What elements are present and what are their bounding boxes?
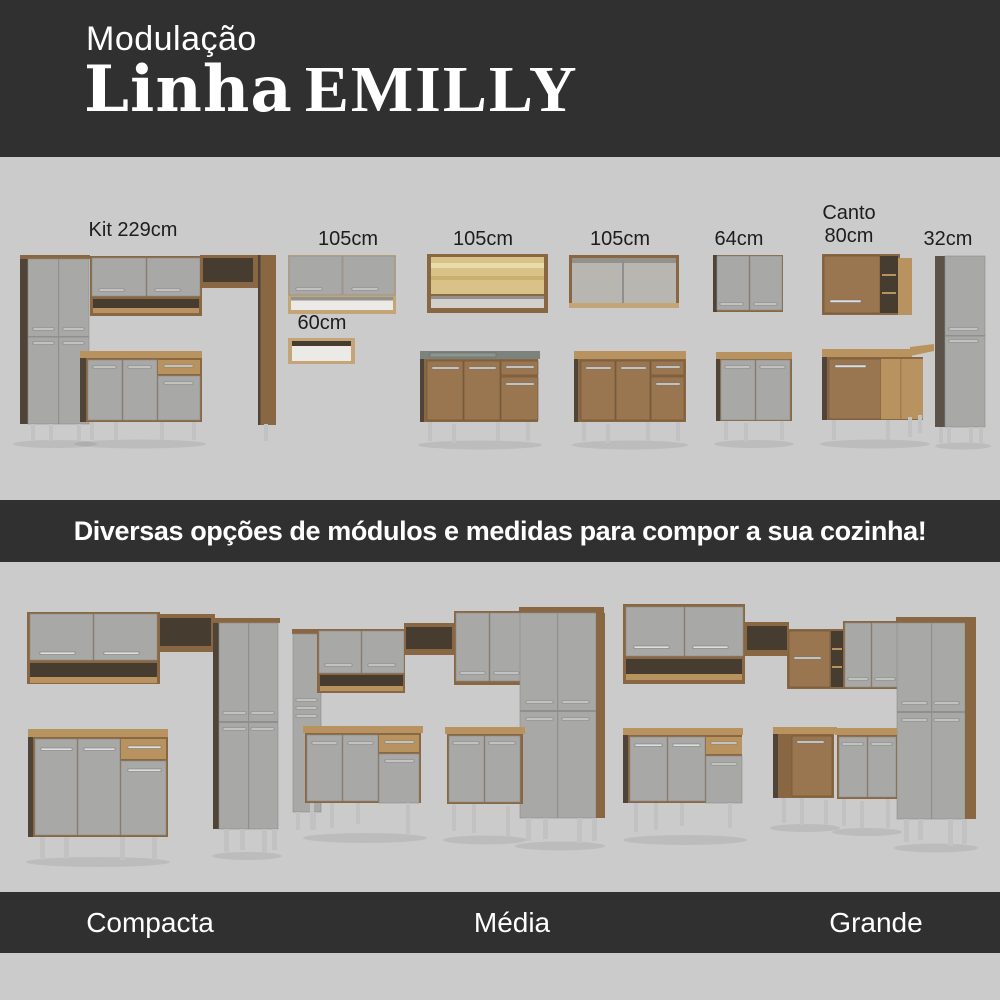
module-base-105-sink-illustration [418, 351, 542, 450]
module-wall-64-illustration [713, 255, 783, 312]
label-105-b: 105cm [453, 228, 513, 251]
page-title: LinhaEMILLY [84, 52, 579, 128]
footer-band: Compacta Média Grande [0, 892, 1000, 953]
label-105-a: 105cm [318, 228, 378, 251]
module-wall-canto-80-illustration [822, 254, 912, 315]
module-wall-105-a-illustration [288, 255, 396, 314]
module-wall-105-c-illustration [569, 255, 679, 308]
label-canto-80: Canto 80cm [822, 202, 875, 248]
label-media: Média [474, 892, 550, 953]
kitchen-compacta-illustration [26, 612, 282, 867]
title-collection-name: EMILLY [305, 53, 579, 126]
label-64: 64cm [715, 228, 764, 251]
module-base-105-illustration [572, 351, 688, 450]
label-105-c: 105cm [590, 228, 650, 251]
label-32: 32cm [924, 228, 973, 251]
label-canto-line1: Canto [822, 202, 875, 225]
module-tall-32-illustration [935, 256, 991, 450]
label-kit-229: Kit 229cm [89, 219, 178, 242]
module-base-64-illustration [714, 352, 794, 448]
header-band: Modulação LinhaEMILLY [0, 0, 1000, 157]
kitchen-grande-illustration [623, 604, 978, 853]
module-niche-60-illustration [288, 338, 355, 364]
module-kit-229-illustration [13, 255, 276, 449]
tagline-band: Diversas opções de módulos e medidas par… [0, 500, 1000, 562]
tagline-text: Diversas opções de módulos e medidas par… [74, 516, 927, 547]
poster: Modulação LinhaEMILLY Kit 229cm 105cm 10… [0, 0, 1000, 1000]
module-wall-105-b-illustration [427, 254, 548, 313]
kitchen-media-illustration [292, 607, 605, 851]
label-grande: Grande [829, 892, 922, 953]
label-60: 60cm [298, 312, 347, 335]
label-compacta: Compacta [86, 892, 214, 953]
label-canto-line2: 80cm [822, 225, 875, 248]
title-line-name: Linha [84, 52, 293, 127]
module-base-canto-80-illustration [820, 344, 934, 449]
